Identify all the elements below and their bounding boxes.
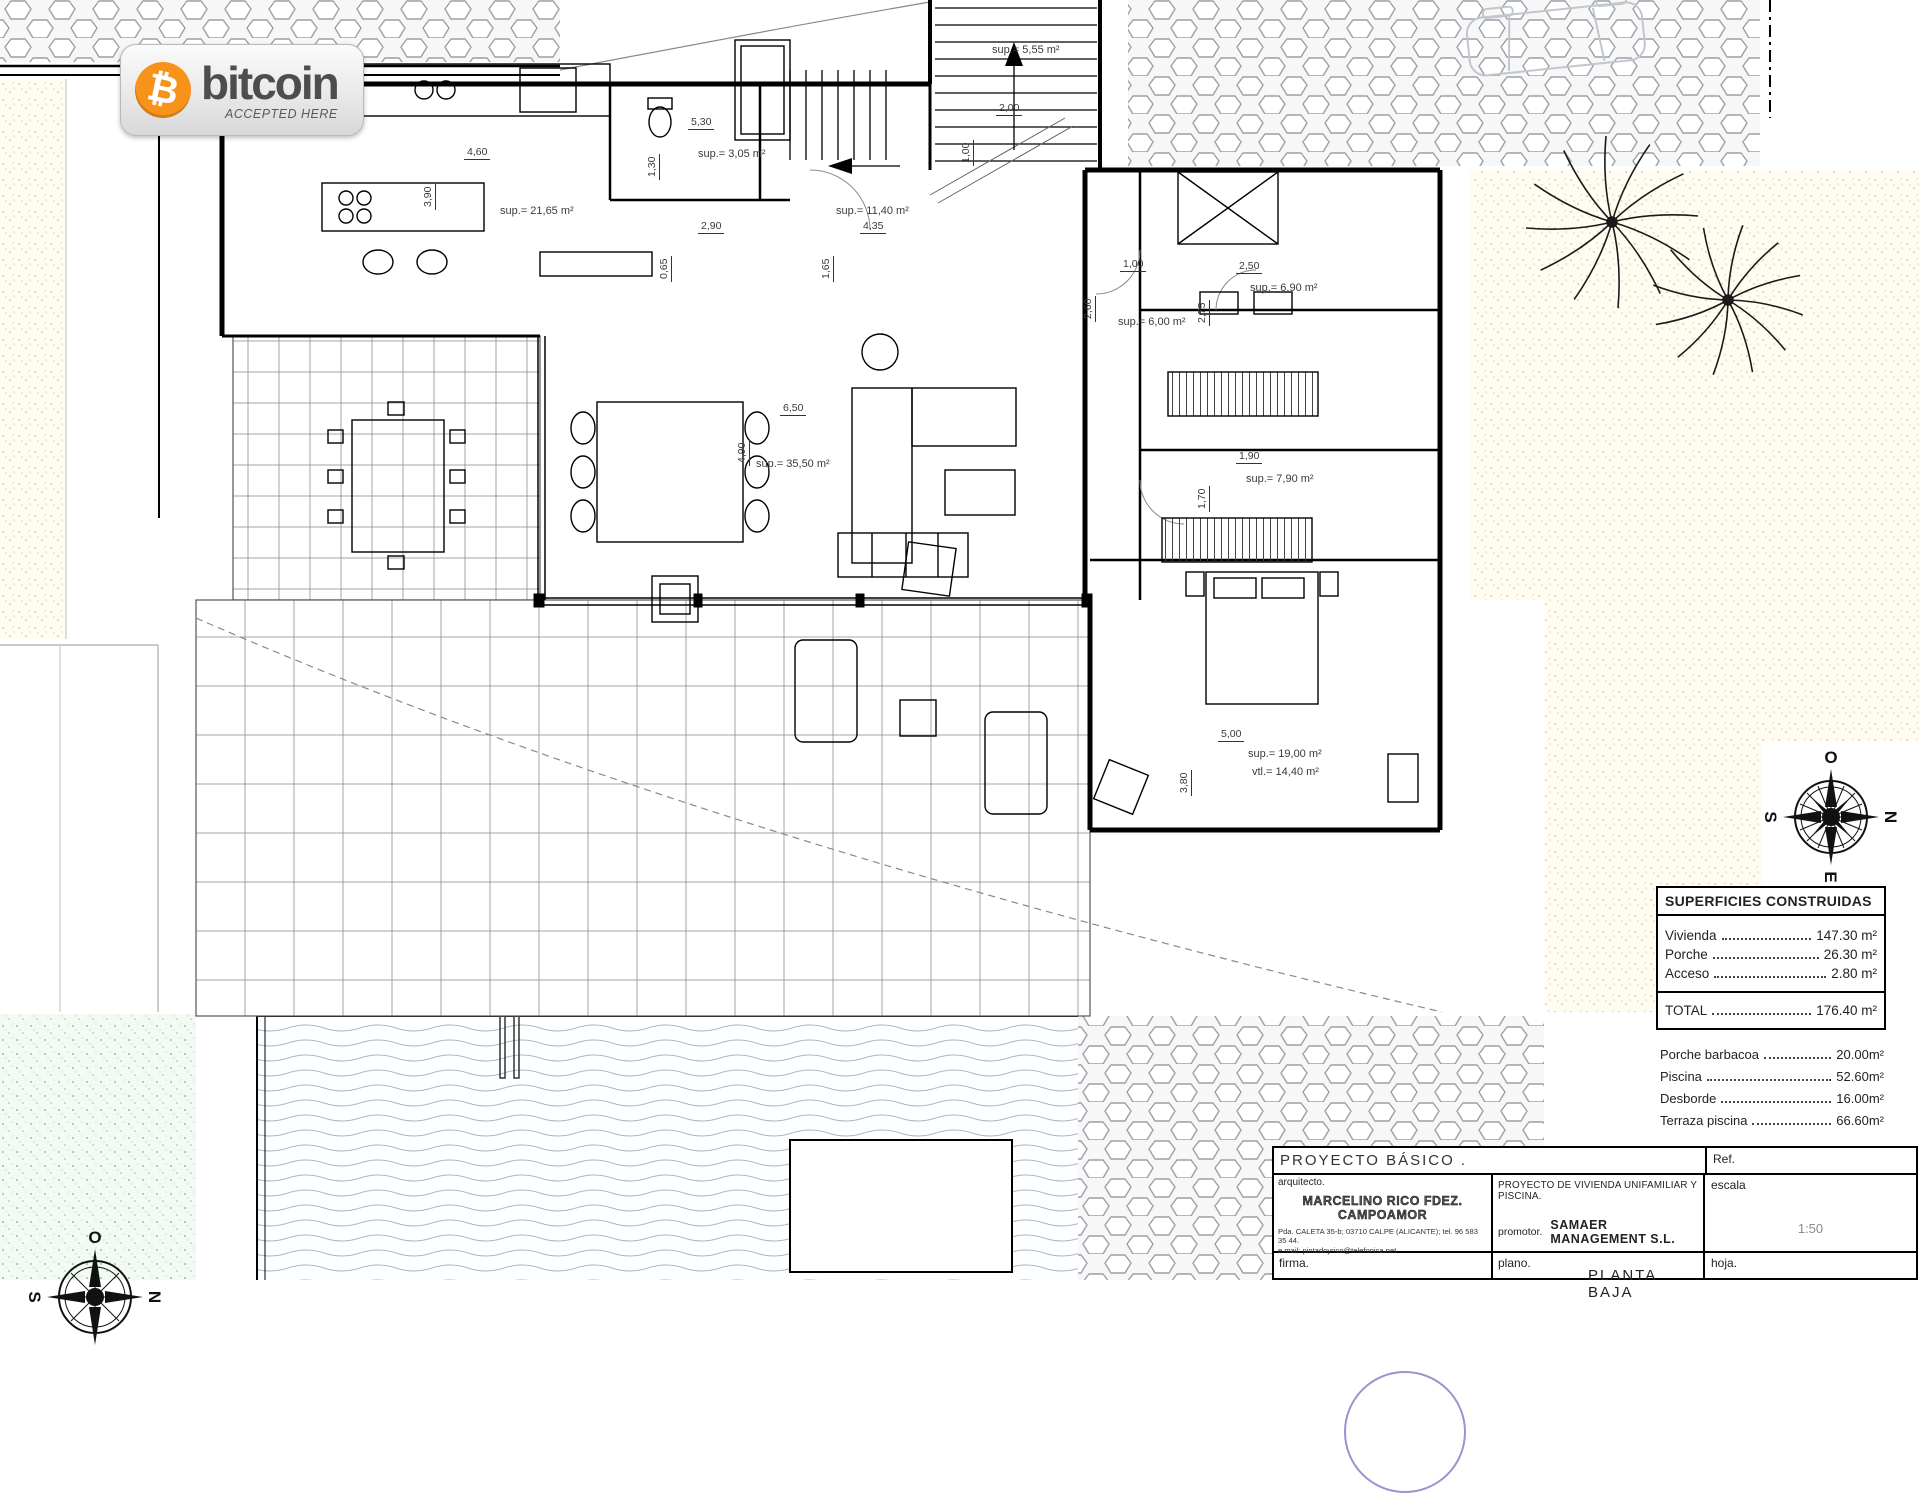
architect-name: MARCELINO RICO FDEZ. CAMPOAMOR (1278, 1194, 1487, 1222)
bitcoin-symbol: ₿ (143, 66, 182, 114)
ref-label: Ref. (1707, 1148, 1916, 1173)
firma-label: firma. (1279, 1256, 1309, 1270)
table-row: Porche 26.30 m² (1665, 947, 1877, 962)
wardrobe (1162, 518, 1312, 562)
armchair (1094, 760, 1149, 815)
title-block: PROYECTO BÁSICO . Ref. arquitecto. MARCE… (1272, 1146, 1918, 1280)
list-item: Piscina 52.60m² (1660, 1069, 1884, 1084)
compass-letter-left: S (25, 1291, 44, 1302)
cobblestone-driveway-top-right (1128, 0, 1760, 166)
list-item: Porche barbacoa 20.00m² (1660, 1047, 1884, 1062)
toilet (649, 107, 671, 137)
plano-value: PLANTA BAJA (1588, 1267, 1703, 1301)
promotor-label: promotor. (1498, 1226, 1542, 1238)
compass-letter-left: S (1761, 811, 1780, 822)
sofa-set (852, 334, 1016, 596)
pool-overflow-deck (790, 1140, 1012, 1272)
architect-cell: arquitecto. MARCELINO RICO FDEZ. CAMPOAM… (1274, 1175, 1493, 1251)
table-row: Vivienda 147.30 m² (1665, 928, 1877, 943)
bed (1186, 572, 1338, 704)
pergola-skylight (1178, 172, 1278, 244)
compass-letter-top: O (88, 1228, 101, 1247)
kitchen-island (322, 183, 484, 274)
built-areas-table: SUPERFICIES CONSTRUIDAS Vivienda 147.30 … (1656, 886, 1886, 1030)
bitcoin-tagline: ACCEPTED HERE (201, 108, 338, 121)
hoja-label: hoja. (1711, 1256, 1737, 1270)
terrace-small-grid (233, 336, 540, 600)
dining-table (571, 402, 769, 542)
built-areas-title: SUPERFICIES CONSTRUIDAS (1658, 888, 1884, 916)
stairs (790, 8, 1097, 203)
compass-rose-icon: O N E S (1756, 742, 1906, 892)
firma-cell: firma. (1274, 1253, 1493, 1280)
compass-letter-right: N (145, 1291, 164, 1303)
plano-cell: plano. PLANTA BAJA (1493, 1253, 1705, 1280)
compass-letter-right: N (1881, 811, 1900, 823)
table-row: Acceso 2.80 m² (1665, 966, 1877, 981)
escala-value: 1:50 (1798, 1221, 1823, 1236)
architect-stamp (1344, 1371, 1466, 1493)
bitcoin-logo-icon: ₿ (130, 57, 196, 123)
scale-cell: escala 1:50 (1705, 1175, 1916, 1251)
list-item: Desborde 16.00m² (1660, 1091, 1884, 1106)
list-item: Terraza piscina 66.60m² (1660, 1113, 1884, 1128)
shower (735, 40, 790, 140)
compass-letter-top: O (1824, 748, 1837, 767)
architect-address: Pda. CALETA 35-b; 03710 CALPE (ALICANTE)… (1278, 1227, 1487, 1246)
site-plan-drawing (0, 0, 1920, 1280)
project-cell: PROYECTO DE VIVIENDA UNIFAMILIAR Y PISCI… (1493, 1175, 1705, 1251)
bitcoin-brand-text: bitcoin (201, 60, 338, 106)
compass-letter-bottom: E (1821, 871, 1840, 882)
table-total-row: TOTAL 176.40 m² (1665, 1003, 1877, 1018)
floor-plan-sheet: { "badge": { "brand": "bitcoin", "taglin… (0, 0, 1920, 1280)
project-title: PROYECTO DE VIVIENDA UNIFAMILIAR Y PISCI… (1498, 1180, 1698, 1202)
sand-garden-left (0, 79, 66, 639)
tv-bench (540, 252, 652, 276)
escala-label: escala (1711, 1178, 1746, 1192)
swimming-pool (257, 1016, 1078, 1280)
terrace-large-grid (196, 600, 1090, 1016)
arquitecto-label: arquitecto. (1278, 1177, 1487, 1188)
project-type: PROYECTO BÁSICO . (1274, 1148, 1707, 1173)
bitcoin-accepted-badge: ₿ bitcoin ACCEPTED HERE (120, 44, 364, 136)
hoja-cell: hoja. (1705, 1253, 1916, 1280)
exterior-areas-list: Porche barbacoa 20.00m² Piscina 52.60m² … (1660, 1040, 1884, 1135)
promotor-name: SAMAER MANAGEMENT S.L. (1550, 1218, 1698, 1246)
plano-label: plano. (1498, 1256, 1531, 1270)
wardrobe (1168, 372, 1318, 416)
desk (1388, 754, 1418, 802)
compass-rose-icon: O N S (20, 1212, 170, 1362)
